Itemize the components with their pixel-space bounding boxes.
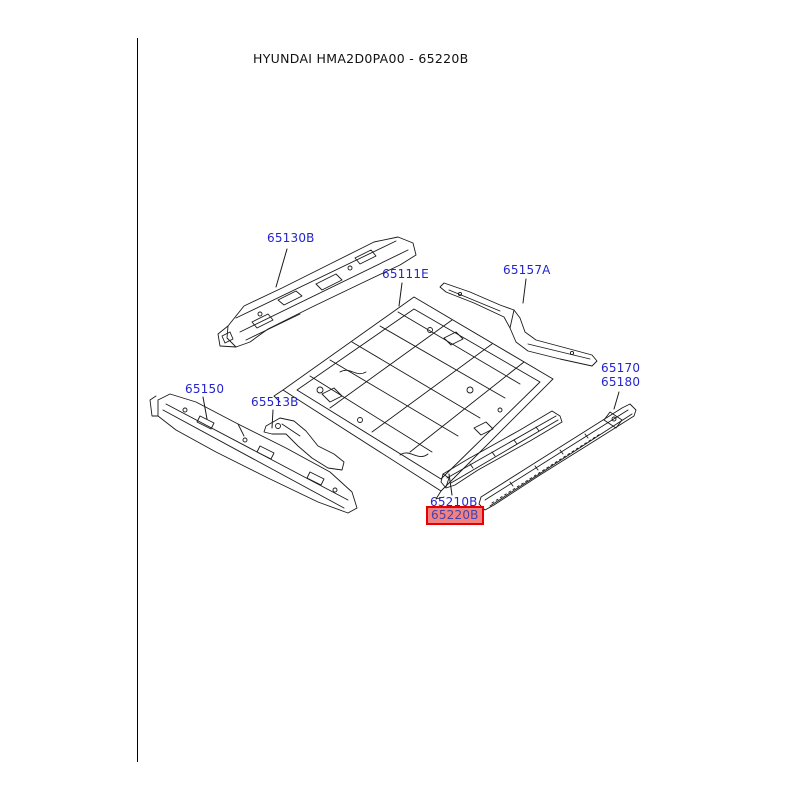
part-65111e-drawing	[274, 297, 553, 499]
part-label-65130b[interactable]: 65130B	[267, 231, 315, 245]
part-label-65513b[interactable]: 65513B	[251, 395, 299, 409]
highlighted-part-box[interactable]: 65220B	[426, 506, 484, 525]
leader-lines	[203, 249, 619, 495]
part-65150-drawing	[150, 394, 357, 513]
part-label-65157a[interactable]: 65157A	[503, 263, 551, 277]
part-65220b-drawing	[441, 411, 562, 488]
part-label-65180[interactable]: 65180	[601, 375, 640, 389]
part-label-65220b[interactable]: 65220B	[431, 508, 479, 522]
part-65157a-drawing	[440, 283, 597, 366]
part-label-65170[interactable]: 65170	[601, 361, 640, 375]
parts-diagram	[0, 0, 800, 800]
part-label-65111e[interactable]: 65111E	[382, 267, 429, 281]
part-65130b-drawing	[218, 237, 416, 347]
parts-catalog-page: { "title": "HYUNDAI HMA2D0PA00 - 65220B"…	[0, 0, 800, 800]
part-label-65150[interactable]: 65150	[185, 382, 224, 396]
